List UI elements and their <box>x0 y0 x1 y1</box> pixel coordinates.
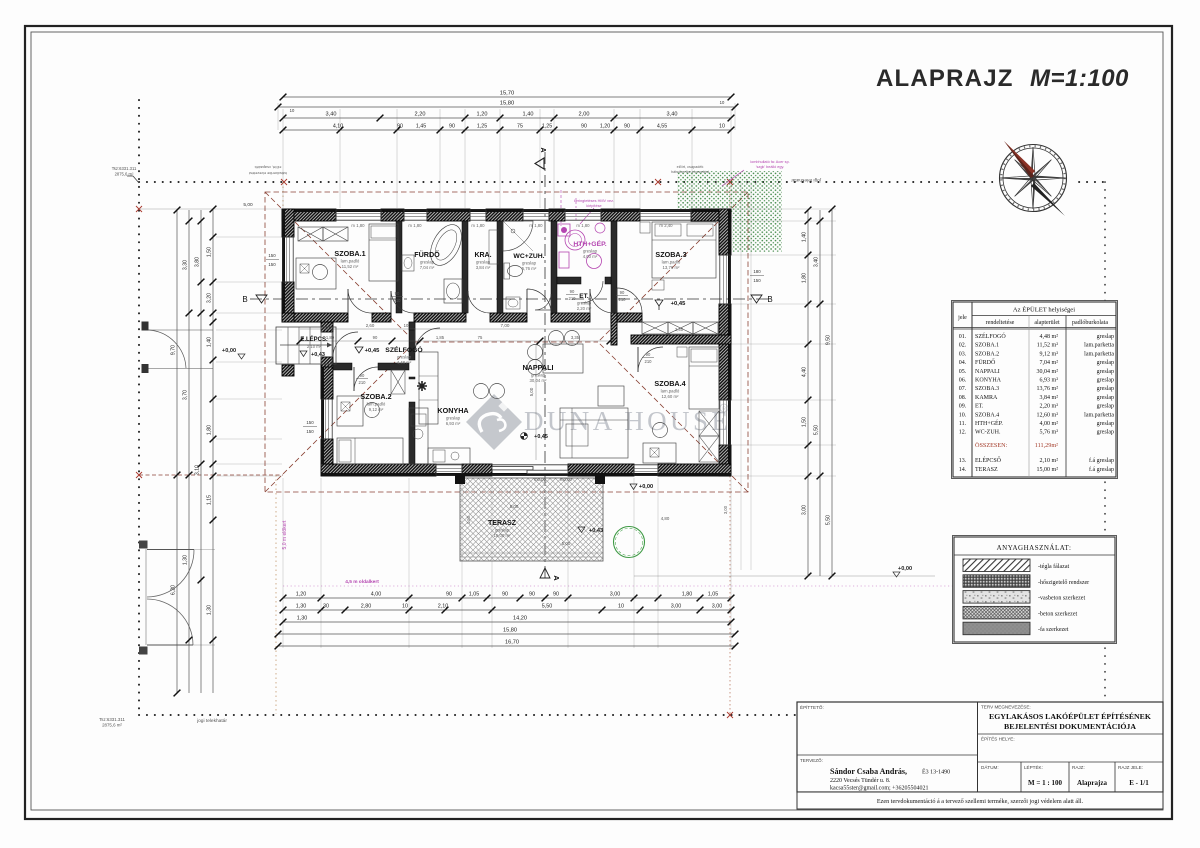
svg-text:75: 75 <box>478 335 483 340</box>
svg-text:1,50: 1,50 <box>207 247 213 257</box>
svg-text:ÉPÍTTETŐ:: ÉPÍTTETŐ: <box>800 704 824 710</box>
svg-text:greslap: greslap <box>1097 378 1114 384</box>
svg-text:+0,00: +0,00 <box>222 348 236 354</box>
svg-text:3,35: 3,35 <box>571 335 580 340</box>
svg-text:11,52 m²: 11,52 m² <box>342 264 359 269</box>
svg-text:1,50: 1,50 <box>466 515 471 524</box>
svg-text:előírt, csapadék: előírt, csapadék <box>255 165 282 169</box>
svg-text:1,30: 1,30 <box>183 555 189 565</box>
svg-text:greslap: greslap <box>1097 421 1114 427</box>
svg-text:2,20 m²: 2,20 m² <box>577 306 592 311</box>
svg-text:13.: 13. <box>959 458 967 464</box>
svg-text:90: 90 <box>446 592 452 598</box>
svg-text:greslap: greslap <box>1097 360 1114 366</box>
svg-text:4,40: 4,40 <box>802 367 808 377</box>
svg-text:SZOBA.4: SZOBA.4 <box>975 412 999 418</box>
svg-text:5,0 m előkert: 5,0 m előkert <box>282 520 288 550</box>
svg-text:LÉPTÉK:: LÉPTÉK: <box>1024 764 1043 770</box>
svg-text:FÜRDŐ: FÜRDŐ <box>414 250 440 259</box>
svg-text:6,93 m²: 6,93 m² <box>1040 378 1059 384</box>
svg-text:9,70: 9,70 <box>171 345 177 355</box>
svg-text:10: 10 <box>404 323 409 328</box>
svg-text:4,55: 4,55 <box>657 124 667 130</box>
svg-text:SZOBA.1: SZOBA.1 <box>334 249 365 258</box>
svg-text:kiépítése: kiépítése <box>586 204 601 208</box>
svg-text:4,48 m²: 4,48 m² <box>397 360 412 365</box>
svg-text:HTH+GÉP.: HTH+GÉP. <box>573 239 606 248</box>
svg-text:2,40: 2,40 <box>675 327 684 332</box>
svg-text:3,20: 3,20 <box>207 293 213 303</box>
svg-text:greslap: greslap <box>1097 430 1114 436</box>
svg-text:14.: 14. <box>959 467 967 473</box>
svg-text:10: 10 <box>720 100 725 105</box>
svg-text:RAJZ:: RAJZ: <box>1072 765 1085 770</box>
svg-text:1,85: 1,85 <box>436 335 445 340</box>
svg-text:6,93 m²: 6,93 m² <box>446 421 461 426</box>
svg-text:02.: 02. <box>959 343 967 349</box>
svg-text:BEJELENTÉSI DOKUMENTÁCIÓJA: BEJELENTÉSI DOKUMENTÁCIÓJA <box>1004 721 1136 731</box>
svg-text:lam.padló: lam.padló <box>341 259 360 264</box>
svg-text:Tsz:6331.311: Tsz:6331.311 <box>112 166 137 171</box>
svg-text:greslap: greslap <box>420 260 435 265</box>
svg-text:1,40: 1,40 <box>523 112 534 118</box>
svg-text:greslap: greslap <box>522 261 537 266</box>
svg-text:-fa szerkezet: -fa szerkezet <box>1038 626 1069 633</box>
svg-text:jele: jele <box>957 315 967 321</box>
svg-text:'szgk' beálló egy.: 'szgk' beálló egy. <box>756 165 784 169</box>
svg-text:2,80: 2,80 <box>361 604 372 610</box>
svg-text:5,00: 5,00 <box>510 504 519 509</box>
svg-text:-hőszigetelő rendszer: -hőszigetelő rendszer <box>1038 580 1089 586</box>
svg-text:11.: 11. <box>959 421 967 427</box>
svg-text:4,00: 4,00 <box>371 592 382 598</box>
svg-text:12,60 m²: 12,60 m² <box>662 394 680 399</box>
svg-text:SZOBA.3: SZOBA.3 <box>655 250 686 259</box>
svg-text:lam.padló: lam.padló <box>662 260 681 265</box>
svg-text:A: A <box>552 575 561 581</box>
svg-text:B: B <box>242 295 247 304</box>
svg-text:Ezen tervdokumentáció á a terv: Ezen tervdokumentáció á a tervező szelle… <box>877 798 1084 805</box>
svg-text:SZOBA.4: SZOBA.4 <box>654 379 685 388</box>
svg-text:lam.parketta: lam.parketta <box>1084 351 1114 357</box>
svg-text:3,00: 3,00 <box>610 592 621 598</box>
svg-text:3,40: 3,40 <box>667 112 678 118</box>
svg-text:9,50: 9,50 <box>826 335 832 345</box>
svg-text:1,50: 1,50 <box>802 417 808 427</box>
svg-text:1,20: 1,20 <box>477 112 488 118</box>
svg-text:m 1,80: m 1,80 <box>408 223 422 228</box>
svg-text:3,00: 3,00 <box>671 604 682 610</box>
svg-text:210: 210 <box>359 380 367 385</box>
svg-text:90: 90 <box>529 592 535 598</box>
svg-text:150: 150 <box>268 253 276 258</box>
svg-text:5,50: 5,50 <box>542 604 553 610</box>
svg-text:1,30: 1,30 <box>296 604 307 610</box>
svg-text:keringtetéses HMV vez.: keringtetéses HMV vez. <box>574 199 614 203</box>
svg-text:RAJZ JELE:: RAJZ JELE: <box>1118 765 1143 770</box>
svg-text:előírt, csapadék: előírt, csapadék <box>677 165 704 169</box>
svg-text:Tsz:6331.311: Tsz:6331.311 <box>99 717 125 722</box>
svg-text:+0,45: +0,45 <box>671 301 686 307</box>
svg-text:greslap: greslap <box>1097 369 1114 375</box>
svg-text:1,25: 1,25 <box>477 124 487 130</box>
svg-text:2875,6 m²: 2875,6 m² <box>102 723 122 728</box>
svg-text:ALAPRAJZ: ALAPRAJZ <box>876 65 1014 92</box>
svg-text:2,00: 2,00 <box>579 112 590 118</box>
svg-text:m 1,80: m 1,80 <box>576 223 590 228</box>
svg-text:3,40: 3,40 <box>814 257 820 267</box>
svg-text:10: 10 <box>618 604 624 610</box>
svg-text:NAPPALI: NAPPALI <box>975 369 1000 375</box>
svg-text:lombhullató fa: Acer sp.: lombhullató fa: Acer sp. <box>750 160 789 164</box>
svg-text:lam.padló: lam.padló <box>367 402 386 407</box>
svg-text:A: A <box>539 147 546 152</box>
svg-text:TERASZ: TERASZ <box>975 467 998 473</box>
svg-text:3,80: 3,80 <box>195 257 201 267</box>
svg-text:alapterület: alapterület <box>1034 320 1060 326</box>
svg-text:+0,43: +0,43 <box>589 528 603 534</box>
svg-text:5,76 m²: 5,76 m² <box>1040 430 1059 436</box>
svg-text:5,00: 5,00 <box>529 387 534 396</box>
svg-text:3,84 m²: 3,84 m² <box>476 265 491 270</box>
svg-text:-vasbeton szerkezet: -vasbeton szerkezet <box>1038 596 1085 602</box>
svg-text:2,10 m²: 2,10 m² <box>1040 458 1059 464</box>
svg-text:15,80: 15,80 <box>500 101 515 107</box>
svg-text:-tégla fálazat: -tégla fálazat <box>1038 563 1069 570</box>
svg-text:2,10 m²: 2,10 m² <box>307 344 322 349</box>
svg-text:greslap: greslap <box>577 301 592 306</box>
svg-text:greslap: greslap <box>1097 404 1114 410</box>
svg-text:3,84 m²: 3,84 m² <box>1040 395 1059 401</box>
svg-text:É3 13-1490: É3 13-1490 <box>922 768 950 776</box>
svg-text:f.á greslap: f.á greslap <box>1089 457 1114 464</box>
svg-text:90: 90 <box>624 124 630 130</box>
svg-text:2,60: 2,60 <box>366 323 375 328</box>
svg-text:1,30: 1,30 <box>297 616 308 622</box>
svg-text:NAPPALI: NAPPALI <box>522 363 553 372</box>
svg-text:+0,00: +0,00 <box>898 566 912 572</box>
svg-text:12,60 m²: 12,60 m² <box>1037 412 1059 418</box>
svg-text:hátsókertbe elvezetést: hátsókertbe elvezetést <box>248 171 287 175</box>
svg-text:13,76 m²: 13,76 m² <box>663 265 681 270</box>
svg-text:05.: 05. <box>959 369 967 375</box>
svg-text:15,00 m²: 15,00 m² <box>494 533 512 538</box>
svg-text:2220 Vecsés Tündér u. 8.: 2220 Vecsés Tündér u. 8. <box>830 778 891 784</box>
svg-text:75: 75 <box>517 124 523 130</box>
svg-text:m 1,80: m 1,80 <box>529 223 543 228</box>
svg-text:TERVEZŐ:: TERVEZŐ: <box>800 757 823 763</box>
svg-text:16,70: 16,70 <box>505 640 519 646</box>
svg-text:5,00: 5,00 <box>243 202 253 208</box>
svg-text:+0,43: +0,43 <box>311 352 325 358</box>
svg-text:rendeltetése: rendeltetése <box>986 320 1015 326</box>
svg-text:9,12 m²: 9,12 m² <box>1040 351 1059 357</box>
svg-text:DUNA HOUSE: DUNA HOUSE <box>524 406 731 436</box>
svg-text:2,20 m²: 2,20 m² <box>1040 404 1059 410</box>
svg-text:10.: 10. <box>959 412 967 418</box>
svg-text:R: R <box>722 407 726 413</box>
svg-text:90: 90 <box>360 373 365 378</box>
svg-text:greslap: greslap <box>531 373 546 378</box>
svg-text:lam.parketta: lam.parketta <box>1084 412 1114 418</box>
svg-text:SZOBA.2: SZOBA.2 <box>975 351 999 357</box>
svg-text:14,20: 14,20 <box>513 616 527 622</box>
svg-text:4,80: 4,80 <box>661 516 670 521</box>
svg-text:hátsókertbe elvezetést: hátsókertbe elvezetést <box>671 170 710 174</box>
svg-text:SZÉLFOGÓ: SZÉLFOGÓ <box>975 332 1006 340</box>
svg-text:15,70: 15,70 <box>500 91 515 97</box>
svg-text:210: 210 <box>394 298 402 303</box>
svg-text:15,00 m²: 15,00 m² <box>1037 467 1059 473</box>
svg-text:KONYHA: KONYHA <box>975 378 1002 384</box>
svg-text:10: 10 <box>719 124 725 130</box>
svg-text:WC-ZUH.: WC-ZUH. <box>975 430 1001 436</box>
svg-text:4,48 m²: 4,48 m² <box>1040 334 1059 340</box>
svg-text:E - 1/1: E - 1/1 <box>1129 779 1149 787</box>
svg-text:M = 1 : 100: M = 1 : 100 <box>1028 779 1062 787</box>
svg-text:EGYLAKÁSOS LAKÓÉPÜLET ÉPÍTÉSÉ: EGYLAKÁSOS LAKÓÉPÜLET ÉPÍTÉSÉNEK <box>989 711 1151 721</box>
svg-text:06.: 06. <box>959 378 967 384</box>
svg-text:11,52 m²: 11,52 m² <box>1037 343 1058 349</box>
svg-text:1,30: 1,30 <box>207 605 213 615</box>
svg-text:-beton szerkezet: -beton szerkezet <box>1038 611 1077 617</box>
svg-text:f.á greslap: f.á greslap <box>1089 466 1114 473</box>
svg-text:5,00: 5,00 <box>562 541 571 546</box>
svg-text:90: 90 <box>449 124 455 130</box>
svg-text:30,04 m²: 30,04 m² <box>1037 369 1059 375</box>
svg-text:3,40: 3,40 <box>326 112 337 118</box>
svg-text:greslap: greslap <box>1097 334 1114 340</box>
svg-text:lam.parketta: lam.parketta <box>1084 343 1114 349</box>
svg-text:3,00: 3,00 <box>723 505 728 514</box>
svg-text:ÉPÍTÉS HELYE:: ÉPÍTÉS HELYE: <box>981 736 1015 742</box>
svg-text:m0,00: m0,00 <box>560 477 572 482</box>
svg-text:08.: 08. <box>959 395 967 401</box>
svg-text:ÖSSZESEN:: ÖSSZESEN: <box>975 442 1008 449</box>
svg-text:greslap: greslap <box>1097 395 1114 401</box>
svg-text:1,80: 1,80 <box>682 592 693 598</box>
svg-text:jogi telekhatár: jogi telekhatár <box>196 718 227 724</box>
svg-text:greslap: greslap <box>476 260 491 265</box>
svg-text:3,10: 3,10 <box>195 465 201 475</box>
svg-text:SZÉLFOGÓ: SZÉLFOGÓ <box>385 345 422 354</box>
svg-text:6,20: 6,20 <box>171 585 177 595</box>
svg-text:1,45: 1,45 <box>416 124 426 130</box>
svg-text:ET.: ET. <box>579 293 589 300</box>
svg-text:greslap: greslap <box>495 528 510 533</box>
svg-text:40: 40 <box>722 327 727 332</box>
svg-text:5,76 m²: 5,76 m² <box>522 266 537 271</box>
svg-text:7,04 m²: 7,04 m² <box>420 265 435 270</box>
svg-text:greslap: greslap <box>583 249 598 254</box>
svg-text:1,80: 1,80 <box>207 425 213 435</box>
svg-text:180: 180 <box>753 269 761 274</box>
svg-text:greslap: greslap <box>397 355 412 360</box>
svg-text:TERASZ: TERASZ <box>488 520 517 527</box>
svg-text:7,00: 7,00 <box>501 323 510 328</box>
svg-text:ANYAGHASZNÁLAT:: ANYAGHASZNÁLAT: <box>997 544 1072 552</box>
svg-text:2,20: 2,20 <box>415 112 426 118</box>
svg-text:90: 90 <box>570 289 575 294</box>
svg-text:111,29m²: 111,29m² <box>1035 442 1058 449</box>
svg-text:90: 90 <box>397 124 403 130</box>
svg-text:150: 150 <box>306 429 314 434</box>
svg-text:3,30: 3,30 <box>183 260 189 270</box>
svg-text:greslap: greslap <box>446 416 461 421</box>
svg-text:1,15: 1,15 <box>207 495 213 505</box>
svg-text:4,00 m²: 4,00 m² <box>583 254 598 259</box>
svg-text:Sándor Csaba András,: Sándor Csaba András, <box>830 767 907 776</box>
svg-text:4,10: 4,10 <box>333 124 343 130</box>
svg-text:7,04 m²: 7,04 m² <box>1040 360 1059 366</box>
svg-text:04.: 04. <box>959 360 967 366</box>
svg-text:13,76 m²: 13,76 m² <box>1037 386 1059 392</box>
svg-text:5,50: 5,50 <box>814 425 820 435</box>
svg-text:DÁTUM:: DÁTUM: <box>981 764 999 770</box>
svg-text:FÜRDŐ: FÜRDŐ <box>975 358 996 366</box>
svg-text:90: 90 <box>395 291 400 296</box>
svg-text:kacsa55ster@gmail.com; +362055: kacsa55ster@gmail.com; +36205504021 <box>830 786 929 792</box>
svg-text:E.LÉPCS.: E.LÉPCS. <box>300 335 328 343</box>
svg-text:03.: 03. <box>959 351 967 357</box>
svg-text:90: 90 <box>620 290 625 295</box>
svg-text:1,80: 1,80 <box>802 273 808 283</box>
svg-text:KAMRA: KAMRA <box>975 395 998 401</box>
svg-text:210: 210 <box>645 359 653 364</box>
svg-text:30: 30 <box>323 604 329 610</box>
svg-text:HTH+GÉP.: HTH+GÉP. <box>975 419 1003 427</box>
svg-text:1,40: 1,40 <box>802 232 808 242</box>
svg-text:1,20: 1,20 <box>296 592 307 598</box>
svg-text:m 1,80: m 1,80 <box>351 223 365 228</box>
svg-text:1,05: 1,05 <box>708 592 719 598</box>
svg-text:jogi telekhatár: jogi telekhatár <box>791 177 822 183</box>
svg-text:m 1,80: m 1,80 <box>471 223 485 228</box>
svg-text:+0,00: +0,00 <box>639 484 653 490</box>
svg-text:Alaprajza: Alaprajza <box>1077 779 1107 787</box>
svg-text:15,80: 15,80 <box>503 628 517 634</box>
svg-text:SZOBA.3: SZOBA.3 <box>975 386 999 392</box>
svg-text:9,12 m²: 9,12 m² <box>369 407 384 412</box>
svg-text:M=1:100: M=1:100 <box>1030 65 1129 92</box>
svg-text:ELÉPCSŐ: ELÉPCSŐ <box>975 456 1002 464</box>
svg-text:210: 210 <box>619 297 627 302</box>
svg-text:2,10: 2,10 <box>438 604 449 610</box>
svg-text:3,70: 3,70 <box>183 390 189 400</box>
svg-text:09.: 09. <box>959 404 967 410</box>
svg-text:07.: 07. <box>959 386 967 392</box>
svg-text:1,40: 1,40 <box>207 337 213 347</box>
svg-text:150: 150 <box>268 262 276 267</box>
svg-text:90: 90 <box>646 352 651 357</box>
svg-text:150: 150 <box>306 420 314 425</box>
svg-text:+0,45: +0,45 <box>365 348 380 354</box>
svg-text:SZOBA.2: SZOBA.2 <box>360 392 391 401</box>
svg-text:3,00: 3,00 <box>802 505 808 515</box>
svg-text:TERV MEGNEVEZÉSE:: TERV MEGNEVEZÉSE: <box>981 704 1031 710</box>
svg-text:4,00 m²: 4,00 m² <box>1040 421 1059 427</box>
svg-text:10: 10 <box>402 604 408 610</box>
svg-text:5,50: 5,50 <box>826 515 832 525</box>
svg-text:90: 90 <box>581 124 587 130</box>
svg-text:m0,00: m0,00 <box>534 477 546 482</box>
svg-text:210: 210 <box>569 296 577 301</box>
svg-text:ET.: ET. <box>975 404 984 410</box>
svg-text:greslap: greslap <box>1097 386 1114 392</box>
svg-text:1,20: 1,20 <box>600 124 610 130</box>
svg-text:SZOBA.1: SZOBA.1 <box>975 343 999 349</box>
svg-text:B: B <box>767 295 772 304</box>
svg-text:150: 150 <box>753 278 761 283</box>
svg-text:30,04 m²: 30,04 m² <box>530 378 548 383</box>
svg-text:4,5 m oldalkert: 4,5 m oldalkert <box>345 579 379 585</box>
svg-text:01.: 01. <box>959 334 967 340</box>
svg-text:1,05: 1,05 <box>469 592 480 598</box>
svg-text:3,00: 3,00 <box>712 604 723 610</box>
svg-text:lam.padló: lam.padló <box>661 389 680 394</box>
svg-text:WC+ZUH.: WC+ZUH. <box>513 253 544 260</box>
svg-text:Az ÉPÜLET helyiségei: Az ÉPÜLET helyiségei <box>1013 306 1075 314</box>
svg-text:90: 90 <box>373 335 378 340</box>
svg-text:padlóburkolata: padlóburkolata <box>1072 320 1108 326</box>
svg-text:1,25: 1,25 <box>542 124 552 130</box>
svg-text:KRA.: KRA. <box>474 252 491 259</box>
svg-text:KONYHA: KONYHA <box>437 406 468 415</box>
svg-text:10: 10 <box>290 108 295 113</box>
svg-text:90: 90 <box>502 592 508 598</box>
svg-text:12.: 12. <box>959 430 967 436</box>
svg-text:90: 90 <box>553 592 559 598</box>
